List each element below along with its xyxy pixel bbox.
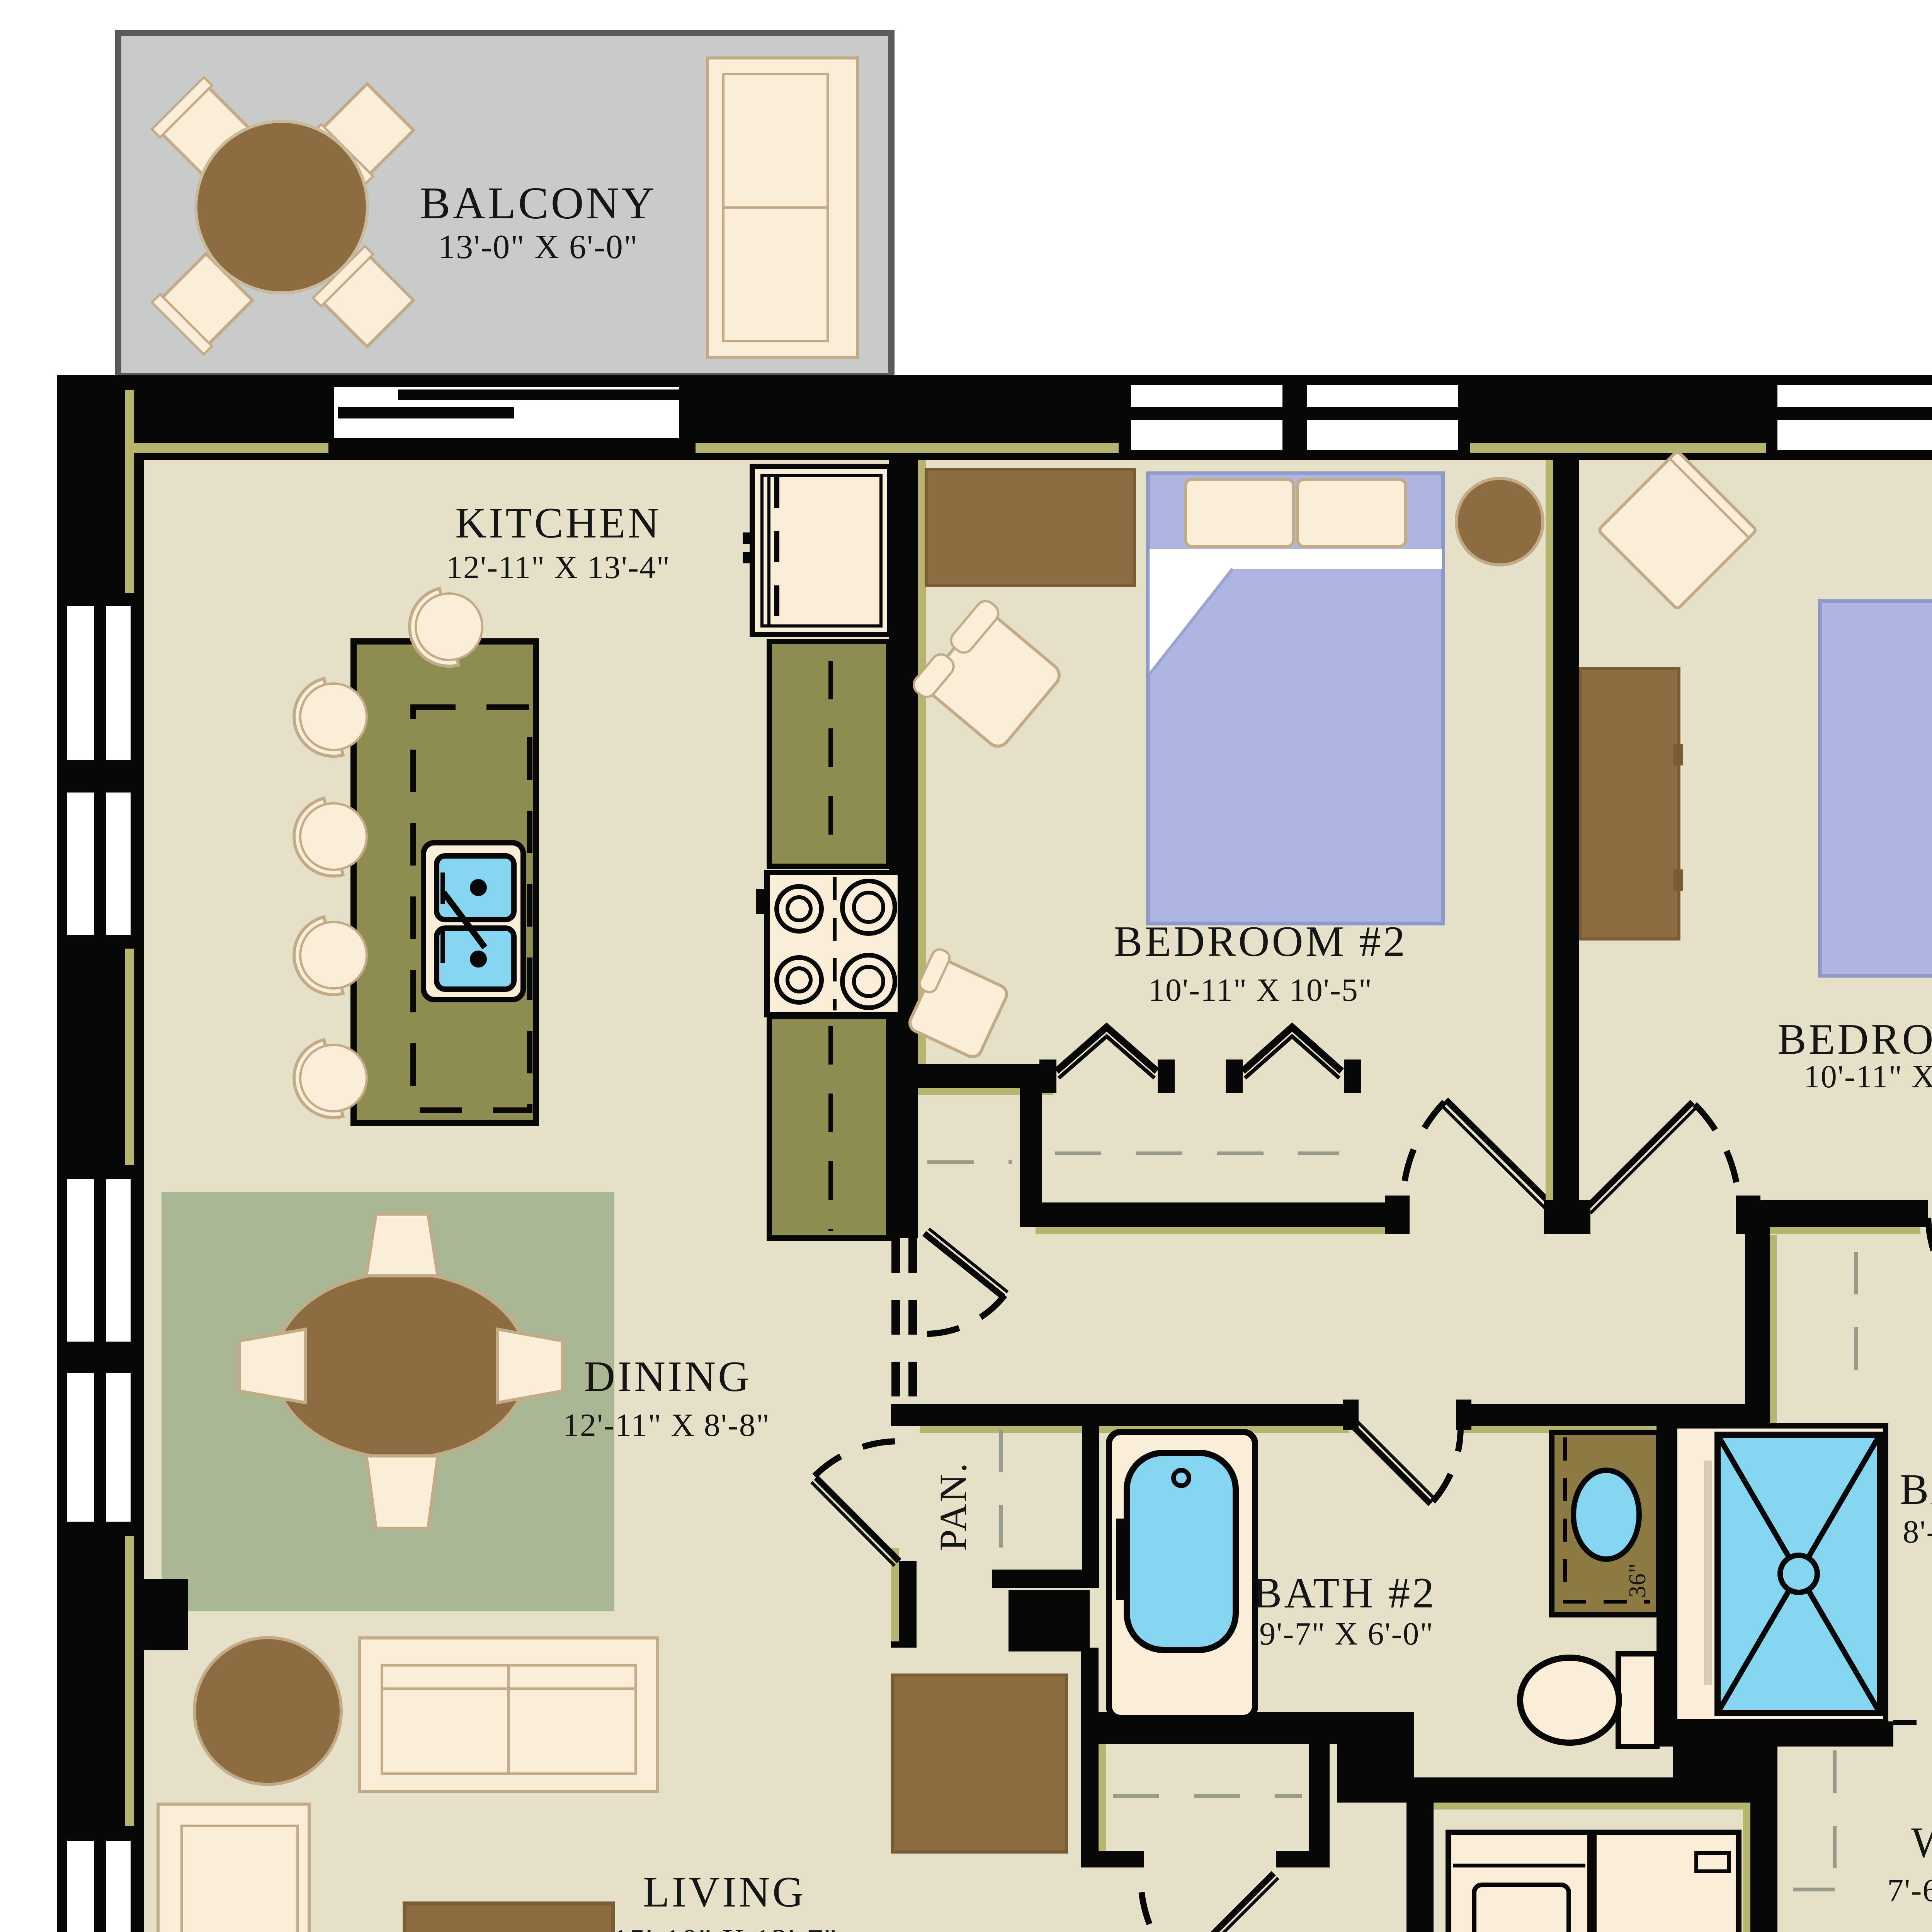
svg-text:BALCONY: BALCONY xyxy=(420,178,656,228)
svg-text:10'-11" X 10'-5": 10'-11" X 10'-5" xyxy=(1148,972,1372,1008)
svg-text:DINING: DINING xyxy=(584,1353,752,1401)
svg-text:12'-11" X 8'-8": 12'-11" X 8'-8" xyxy=(563,1407,770,1443)
svg-text:15'-10" X 12'-7": 15'-10" X 12'-7" xyxy=(612,1923,837,1932)
svg-text:PAN.: PAN. xyxy=(932,1461,975,1551)
svg-text:12'-11" X 13'-4": 12'-11" X 13'-4" xyxy=(446,549,670,585)
svg-text:W.I.C.: W.I.C. xyxy=(1911,1819,1932,1867)
svg-text:BEDROOM #1: BEDROOM #1 xyxy=(1777,1015,1932,1063)
svg-text:BEDROOM #2: BEDROOM #2 xyxy=(1114,918,1407,966)
svg-text:9'-7" X 6'-0": 9'-7" X 6'-0" xyxy=(1259,1616,1434,1652)
svg-text:BATH #1: BATH #1 xyxy=(1900,1466,1932,1514)
svg-text:8'-7" X 8'-4": 8'-7" X 8'-4" xyxy=(1903,1514,1932,1550)
svg-text:13'-0" X 6'-0": 13'-0" X 6'-0" xyxy=(438,228,638,266)
svg-text:7'-6" X 4'-2": 7'-6" X 4'-2" xyxy=(1887,1872,1932,1908)
svg-text:KITCHEN: KITCHEN xyxy=(455,499,661,547)
svg-text:BATH #2: BATH #2 xyxy=(1253,1569,1436,1617)
svg-text:LIVING: LIVING xyxy=(643,1868,806,1916)
svg-text:10'-11" X 12'-10": 10'-11" X 12'-10" xyxy=(1804,1059,1932,1095)
svg-text:36": 36" xyxy=(1624,1563,1651,1598)
